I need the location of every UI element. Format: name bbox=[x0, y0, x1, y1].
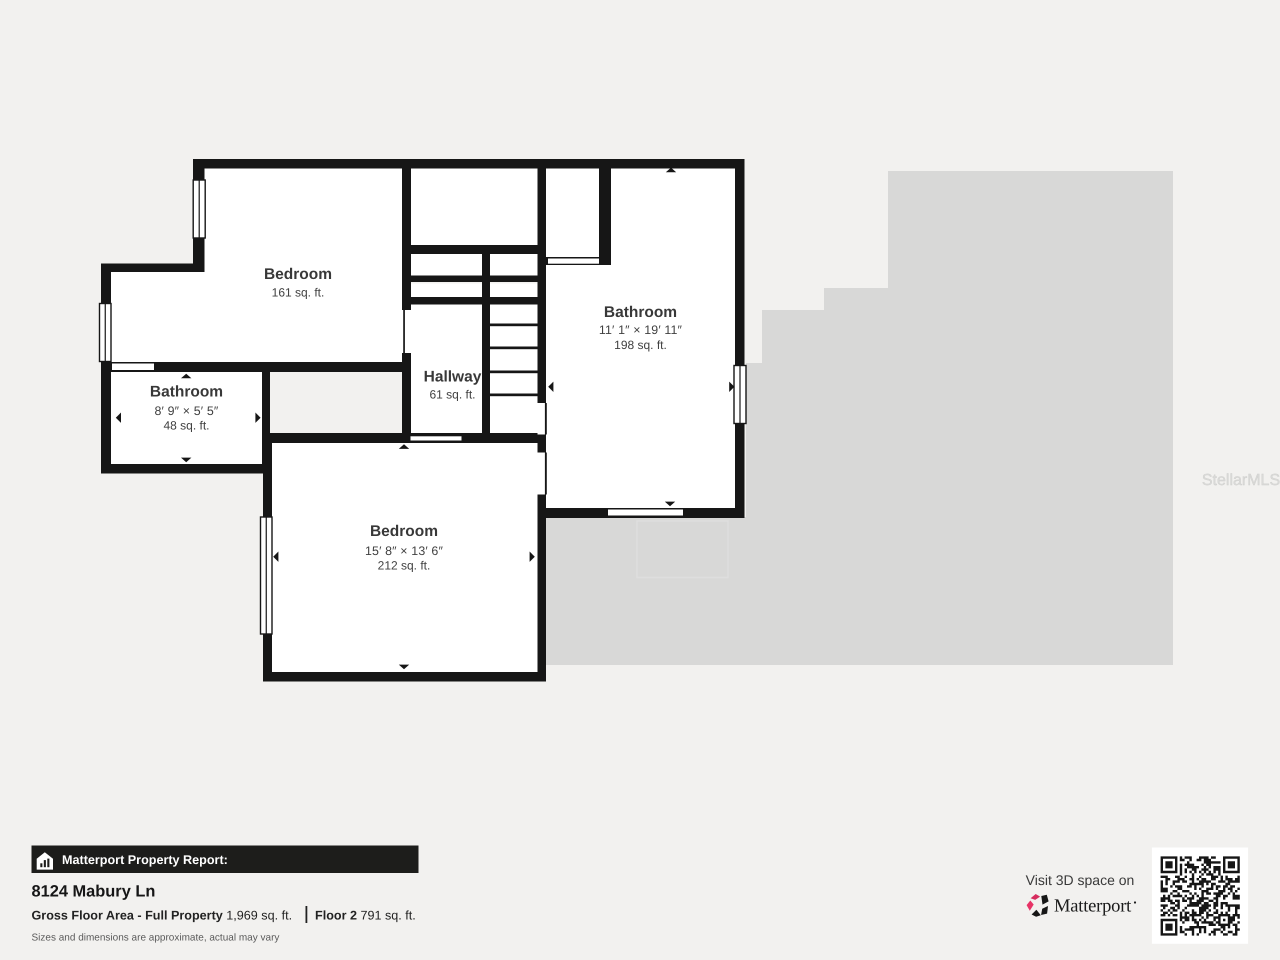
svg-text:Bedroom: Bedroom bbox=[264, 266, 332, 283]
svg-text:Sizes and dimensions are appro: Sizes and dimensions are approximate, ac… bbox=[32, 933, 280, 944]
svg-text:Bedroom: Bedroom bbox=[370, 523, 438, 540]
svg-text:15′ 8″ × 13′ 6″: 15′ 8″ × 13′ 6″ bbox=[365, 544, 443, 558]
svg-text:8124 Mabury Ln: 8124 Mabury Ln bbox=[32, 883, 156, 901]
svg-text:198 sq. ft.: 198 sq. ft. bbox=[614, 338, 667, 352]
svg-text:Hallway: Hallway bbox=[424, 369, 482, 386]
svg-text:Matterport Property Report:: Matterport Property Report: bbox=[62, 853, 228, 867]
svg-text:48 sq. ft.: 48 sq. ft. bbox=[163, 419, 209, 433]
svg-text:Bathroom: Bathroom bbox=[150, 384, 223, 401]
svg-text:StellarMLS: StellarMLS bbox=[1202, 472, 1280, 489]
svg-text:161 sq. ft.: 161 sq. ft. bbox=[272, 286, 325, 300]
svg-text:Bathroom: Bathroom bbox=[604, 304, 677, 321]
svg-text:212 sq. ft.: 212 sq. ft. bbox=[378, 559, 431, 573]
svg-text:Gross Floor Area - Full Proper: Gross Floor Area - Full Property 1,969 s… bbox=[32, 909, 293, 923]
svg-text:Matterport: Matterport bbox=[1054, 897, 1132, 917]
svg-text:Floor 2 791 sq. ft.: Floor 2 791 sq. ft. bbox=[315, 909, 416, 923]
svg-text:Visit 3D space on: Visit 3D space on bbox=[1026, 872, 1135, 888]
svg-text:61 sq. ft.: 61 sq. ft. bbox=[429, 388, 475, 402]
svg-text:11′ 1″ × 19′ 11″: 11′ 1″ × 19′ 11″ bbox=[599, 323, 683, 337]
svg-text:8′ 9″ × 5′ 5″: 8′ 9″ × 5′ 5″ bbox=[155, 404, 219, 418]
